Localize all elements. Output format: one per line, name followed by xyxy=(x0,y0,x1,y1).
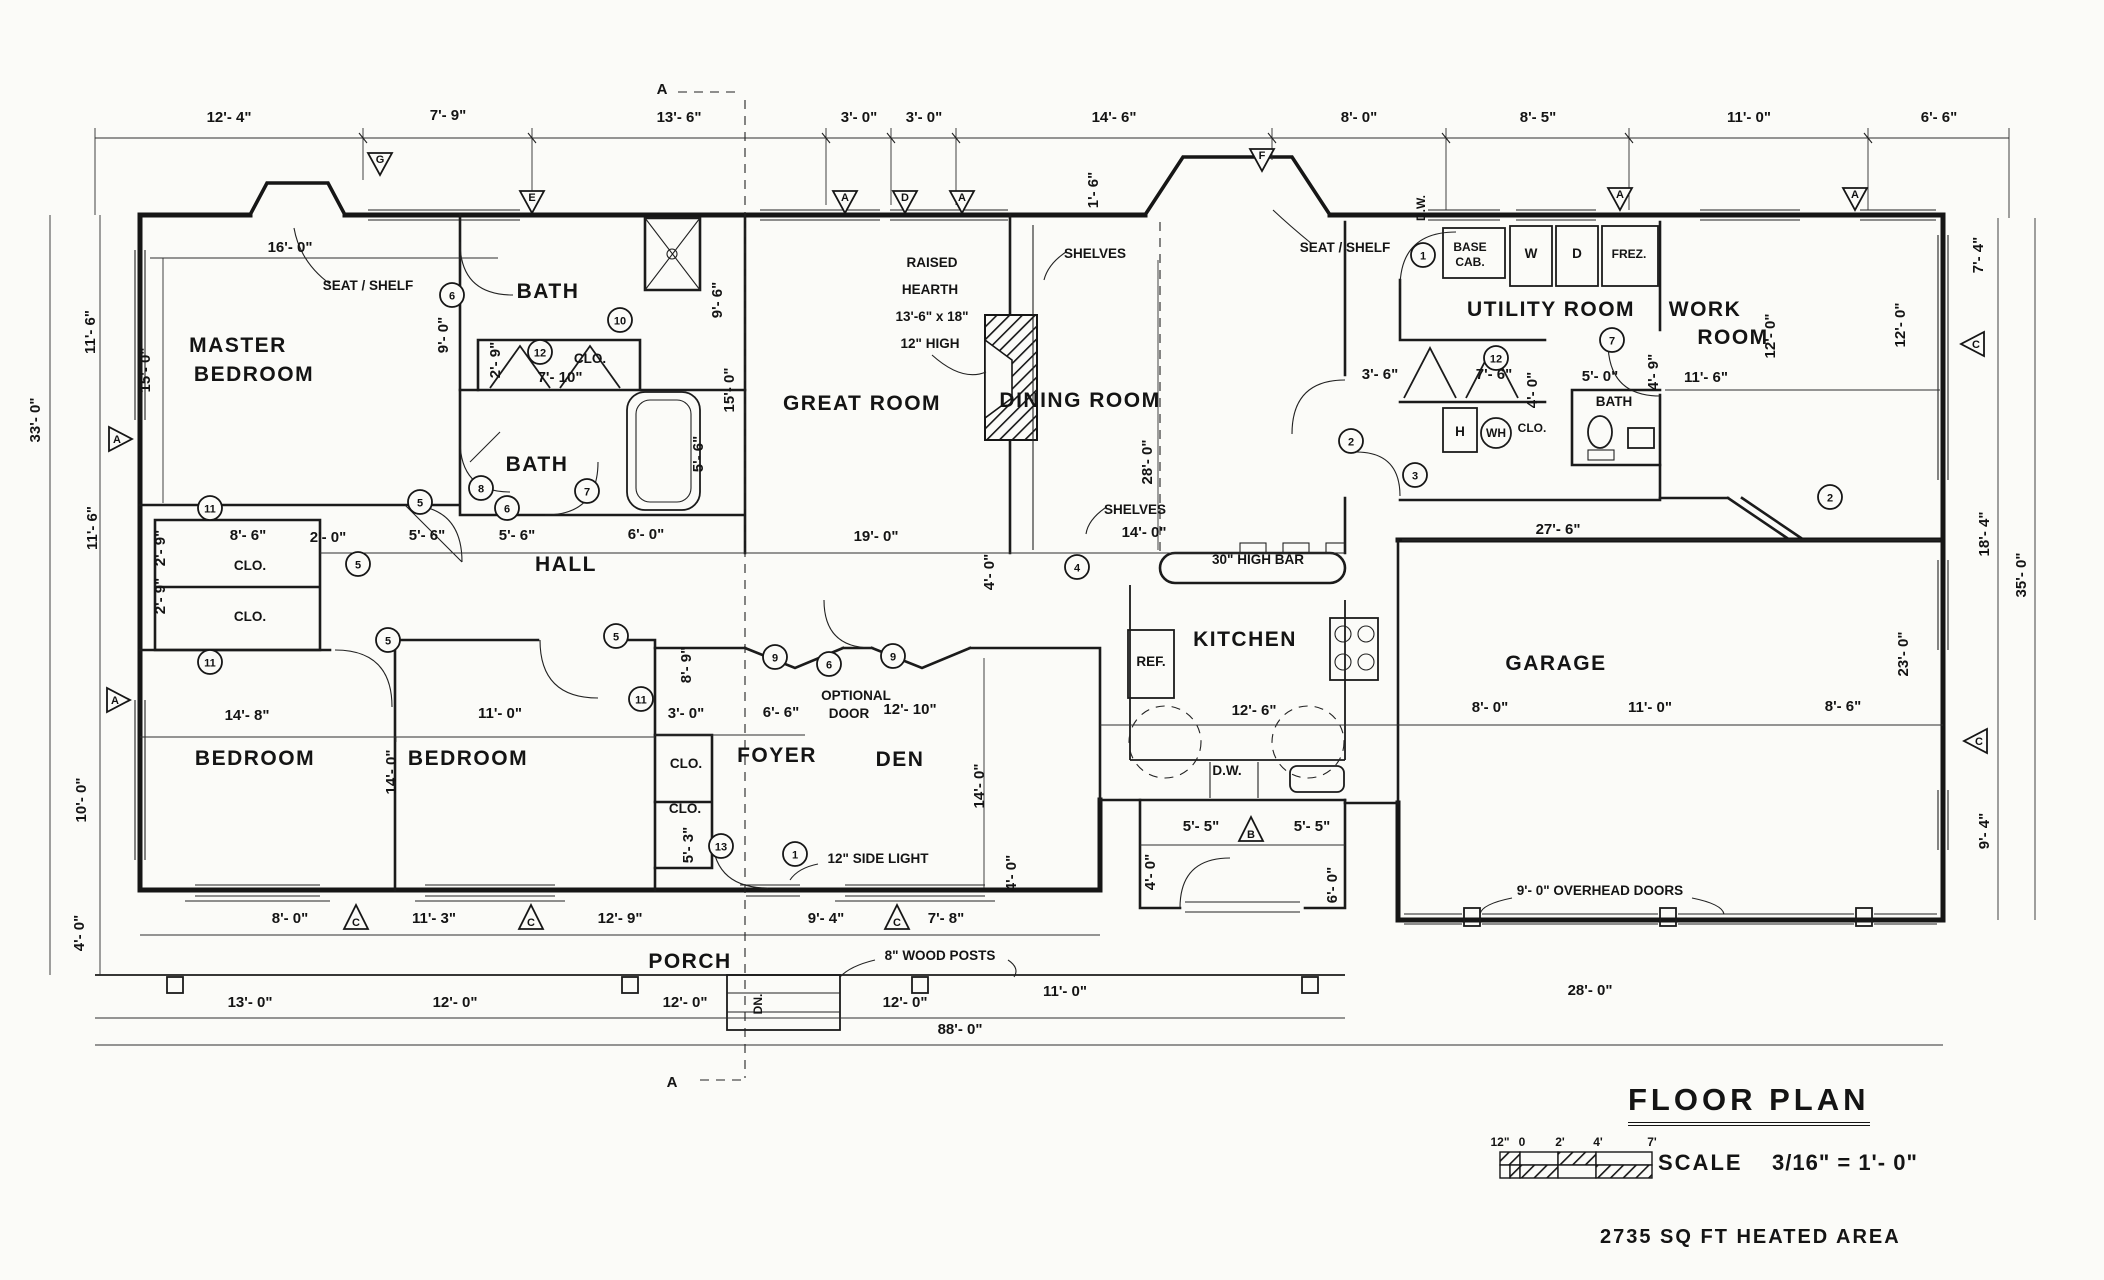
section-line-a xyxy=(678,92,745,1080)
dimension-text: 12'- 0" xyxy=(433,994,478,1011)
keynote-number: 6 xyxy=(449,291,455,303)
dimension-text: 12'- 10" xyxy=(883,701,936,718)
room-work-room: WORK xyxy=(1669,298,1742,321)
annotation-text: 8" WOOD POSTS xyxy=(885,948,996,963)
dimension-text: 7'- 9" xyxy=(430,107,467,124)
section-marker-letter: F xyxy=(1259,150,1266,162)
dimension-text: 4'- 0" xyxy=(1142,854,1159,891)
dimension-text: 9'- 6" xyxy=(709,282,726,319)
dimension-text: 11'- 6" xyxy=(84,506,101,550)
dimension-text: 11'- 0" xyxy=(478,705,522,722)
annotation-text: H xyxy=(1455,424,1465,439)
dimension-text: 35'- 0" xyxy=(2013,553,2030,598)
dimension-text: A xyxy=(667,1074,678,1091)
keynote-number: 5 xyxy=(385,636,391,648)
annotation-text: CLO. xyxy=(670,756,702,771)
dimension-text: 2'- 0" xyxy=(310,529,347,546)
dimension-text: 14'- 0" xyxy=(383,750,400,795)
annotation-text: D.W. xyxy=(1212,763,1241,778)
dimension-text: 2'- 9" xyxy=(487,342,504,379)
room-bath-3: BATH xyxy=(1596,394,1633,409)
keynote-number: 7 xyxy=(1609,336,1615,348)
dimension-text: 3'- 0" xyxy=(841,109,878,126)
section-marker-letter: C xyxy=(1972,339,1980,351)
section-marker-letter: G xyxy=(376,154,385,166)
room-master-bedroom: MASTER xyxy=(189,334,287,357)
room-hall: HALL xyxy=(535,553,597,576)
annotation-text: 30" HIGH BAR xyxy=(1212,552,1304,567)
section-marker-letter: B xyxy=(1247,829,1255,841)
dimension-text: 4'- 0" xyxy=(1524,372,1541,409)
keynote-number: 3 xyxy=(1412,471,1418,483)
scale-bar-tick: 12" xyxy=(1490,1135,1509,1149)
keynote-number: 2 xyxy=(1827,493,1833,505)
dimension-text: 7'- 10" xyxy=(538,369,583,386)
dimension-text: 8'- 0" xyxy=(1341,109,1378,126)
dimension-text: 5'- 6" xyxy=(409,527,446,544)
room-utility-room: UTILITY ROOM xyxy=(1467,298,1635,321)
scale-bar-tick: 0 xyxy=(1519,1135,1526,1149)
keynote-number: 5 xyxy=(355,560,361,572)
dimension-text: 2'- 9" xyxy=(152,578,169,615)
dimension-text: 4'- 0" xyxy=(71,915,88,952)
section-marker-letter: D xyxy=(901,192,909,204)
dimension-text: 11'- 0" xyxy=(1043,983,1087,1000)
scale-value: 3/16" = 1'- 0" xyxy=(1772,1150,1918,1176)
keynote-number: 7 xyxy=(584,487,590,499)
keynote-number: 1 xyxy=(1420,251,1426,263)
dimension-text: 5'- 3" xyxy=(680,827,697,864)
annotation-text: CLO. xyxy=(234,609,266,624)
annotation-text: CLO. xyxy=(669,801,701,816)
annotation-text: RAISED xyxy=(906,255,957,270)
section-marker-letter: A xyxy=(1616,189,1624,201)
dimension-text: 10'- 0" xyxy=(73,778,90,823)
dimension-text: 12'- 0" xyxy=(1892,303,1909,348)
dimension-text: 9'- 4" xyxy=(1976,813,1993,850)
dimension-text: 12'- 4" xyxy=(207,109,252,126)
dimension-text: 12'- 9" xyxy=(598,910,643,927)
annotation-text: 13'-6" x 18" xyxy=(895,309,968,324)
section-marker-letter: E xyxy=(528,192,535,204)
room-garage: GARAGE xyxy=(1505,652,1606,675)
dimension-text: 12'- 0" xyxy=(663,994,708,1011)
keynote-number: 11 xyxy=(635,695,647,707)
keynote-number: 6 xyxy=(504,504,510,516)
dimension-text: 14'- 0" xyxy=(1122,524,1167,541)
dimension-text: 7'- 8" xyxy=(928,910,965,927)
dimension-lines xyxy=(50,128,2035,1045)
dimension-text: 3'- 6" xyxy=(1362,366,1399,383)
porch xyxy=(95,975,1345,1030)
section-marker-letter: C xyxy=(1975,736,1983,748)
dimension-text: 14'- 6" xyxy=(1092,109,1137,126)
annotation-text: FREZ. xyxy=(1612,247,1647,261)
room-work-room: ROOM xyxy=(1697,326,1768,349)
dimension-text: 4'- 9" xyxy=(1645,354,1662,391)
dimension-text: 4'- 0" xyxy=(1003,855,1020,892)
annotation-text: SEAT / SHELF xyxy=(323,278,414,293)
dimension-text: 11'- 0" xyxy=(1628,699,1672,716)
annotation-text: D.W. xyxy=(1414,195,1428,221)
dimension-text: 11'- 6" xyxy=(82,310,99,354)
annotation-text: CLO. xyxy=(574,351,606,366)
dimension-text: 15'- 0" xyxy=(137,348,154,393)
keynote-number: 5 xyxy=(613,632,619,644)
section-marker-letter: A xyxy=(113,434,121,446)
annotation-text: WH xyxy=(1486,426,1506,440)
annotation-text: OPTIONAL xyxy=(821,688,891,703)
room-bedroom-1: BEDROOM xyxy=(195,747,315,770)
keynote-number: 4 xyxy=(1074,563,1081,575)
keynote-number: 8 xyxy=(478,484,484,496)
keynote-number: 6 xyxy=(826,660,832,672)
dimension-text: 9'- 4" xyxy=(808,910,845,927)
dimension-text: 1'- 6" xyxy=(1085,172,1102,209)
dimension-text: 5'- 6" xyxy=(690,436,707,473)
floor-plan-canvas: 12'- 4"7'- 9"13'- 6"3'- 0"3'- 0"14'- 6"8… xyxy=(0,0,2104,1280)
keynote-number: 2 xyxy=(1348,437,1354,449)
keynote-number: 12 xyxy=(1490,354,1502,366)
dimension-text: 6'- 0" xyxy=(1324,867,1341,904)
room-dining-room: DINING ROOM xyxy=(999,389,1160,412)
room-bedroom-2: BEDROOM xyxy=(408,747,528,770)
keynote-number: 13 xyxy=(715,842,727,854)
room-den: DEN xyxy=(876,748,925,771)
dimension-text: 8'- 9" xyxy=(678,647,695,684)
dimension-text: 8'- 0" xyxy=(272,910,309,927)
dimension-text: 7'- 4" xyxy=(1970,237,1987,274)
annotation-text: REF. xyxy=(1136,654,1165,669)
annotation-text: CLO. xyxy=(234,558,266,573)
annotation-text: CAB. xyxy=(1455,255,1484,269)
dimension-text: 8'- 0" xyxy=(1472,699,1509,716)
dimension-text: 8'- 6" xyxy=(230,527,267,544)
dimension-text: 16'- 0" xyxy=(268,239,313,256)
keynote-number: 11 xyxy=(204,658,216,670)
room-kitchen: KITCHEN xyxy=(1193,628,1297,651)
keynote-number: 1 xyxy=(792,850,798,862)
section-marker-letter: A xyxy=(1851,189,1859,201)
section-marker-letter: A xyxy=(111,695,119,707)
dimension-text: 5'- 5" xyxy=(1294,818,1331,835)
dimension-text: 2'- 9" xyxy=(152,530,169,567)
annotation-text: BASE xyxy=(1453,240,1486,254)
dimension-text: 27'- 6" xyxy=(1536,521,1581,538)
dimension-text: 18'- 4" xyxy=(1976,512,1993,557)
dimension-text: 8'- 6" xyxy=(1825,698,1862,715)
scale-bar-tick: 7' xyxy=(1647,1135,1657,1149)
section-marker-letter: C xyxy=(352,917,360,929)
annotation-text: 12" SIDE LIGHT xyxy=(828,851,930,866)
dimension-text: 88'- 0" xyxy=(938,1021,983,1038)
dimension-text: 6'- 6" xyxy=(763,704,800,721)
dimension-text: 5'- 6" xyxy=(499,527,536,544)
keynote-number: 5 xyxy=(417,498,423,510)
keynote-number: 9 xyxy=(772,653,778,665)
dimension-text: 12'- 0" xyxy=(1762,314,1779,359)
room-bath-2: BATH xyxy=(506,453,569,476)
dimension-text: 13'- 0" xyxy=(228,994,273,1011)
keynote-number: 11 xyxy=(204,504,216,516)
dimension-text: 11'- 0" xyxy=(1727,109,1771,126)
annotation-text: SEAT / SHELF xyxy=(1300,240,1391,255)
dimension-text: 3'- 0" xyxy=(906,109,943,126)
annotation-text: CLO. xyxy=(1518,421,1547,435)
annotation-text: DN. xyxy=(751,994,765,1015)
room-master-bedroom: BEDROOM xyxy=(194,363,314,386)
annotation-text: W xyxy=(1525,246,1538,261)
annotation-text: DOOR xyxy=(829,706,870,721)
scale-bar-tick: 4' xyxy=(1593,1135,1603,1149)
scale-bar-tick: 2' xyxy=(1555,1135,1565,1149)
room-foyer: FOYER xyxy=(737,744,817,767)
section-marker-letter: C xyxy=(527,917,535,929)
section-marker-letter: C xyxy=(893,917,901,929)
room-great-room: GREAT ROOM xyxy=(783,392,941,415)
scale-bar xyxy=(1500,1152,1652,1178)
section-marker-letter: A xyxy=(841,192,849,204)
dimension-text: A xyxy=(657,81,668,98)
section-marker-letter: A xyxy=(958,192,966,204)
dimension-text: 4'- 0" xyxy=(981,554,998,591)
dimension-text: 13'- 6" xyxy=(657,109,702,126)
dimension-text: 3'- 0" xyxy=(668,705,705,722)
drawing-title: FLOOR PLAN xyxy=(1628,1082,1870,1126)
dimension-text: 23'- 0" xyxy=(1895,632,1912,677)
dimension-text: 14'- 0" xyxy=(971,764,988,809)
annotation-text: D xyxy=(1572,246,1582,261)
dimension-text: 11'- 3" xyxy=(412,910,456,927)
scale-label: SCALE xyxy=(1658,1150,1743,1176)
dimension-text: 6'- 6" xyxy=(1921,109,1958,126)
dimension-text: 14'- 8" xyxy=(225,707,270,724)
keynote-number: 9 xyxy=(890,652,896,664)
annotation-text: SHELVES xyxy=(1104,502,1166,517)
dimension-text: 5'- 5" xyxy=(1183,818,1220,835)
dimension-text: 8'- 5" xyxy=(1520,109,1557,126)
dimension-text: 28'- 0" xyxy=(1139,440,1156,485)
heated-area-note: 2735 SQ FT HEATED AREA xyxy=(1600,1226,1901,1249)
annotation-text: SHELVES xyxy=(1064,246,1126,261)
annotation-text: 9'- 0" OVERHEAD DOORS xyxy=(1517,883,1683,898)
dimension-text: 5'- 0" xyxy=(1582,368,1619,385)
keynote-number: 10 xyxy=(614,316,626,328)
dimension-text: 9'- 0" xyxy=(435,317,452,354)
keynote-number: 12 xyxy=(534,348,546,360)
dimension-text: 19'- 0" xyxy=(854,528,899,545)
dimension-text: 6'- 0" xyxy=(628,526,665,543)
dimension-text: 33'- 0" xyxy=(27,398,44,443)
interior-walls xyxy=(140,215,1943,926)
dimension-text: 12'- 6" xyxy=(1232,702,1277,719)
dimension-text: 12'- 0" xyxy=(883,994,928,1011)
annotation-text: 12" HIGH xyxy=(901,336,960,351)
dimension-text: 11'- 6" xyxy=(1684,369,1728,386)
annotation-text: HEARTH xyxy=(902,282,958,297)
room-bath-1: BATH xyxy=(517,280,580,303)
dimension-text: 15'- 0" xyxy=(721,368,738,413)
room-porch: PORCH xyxy=(648,950,731,973)
dimension-text: 28'- 0" xyxy=(1568,982,1613,999)
